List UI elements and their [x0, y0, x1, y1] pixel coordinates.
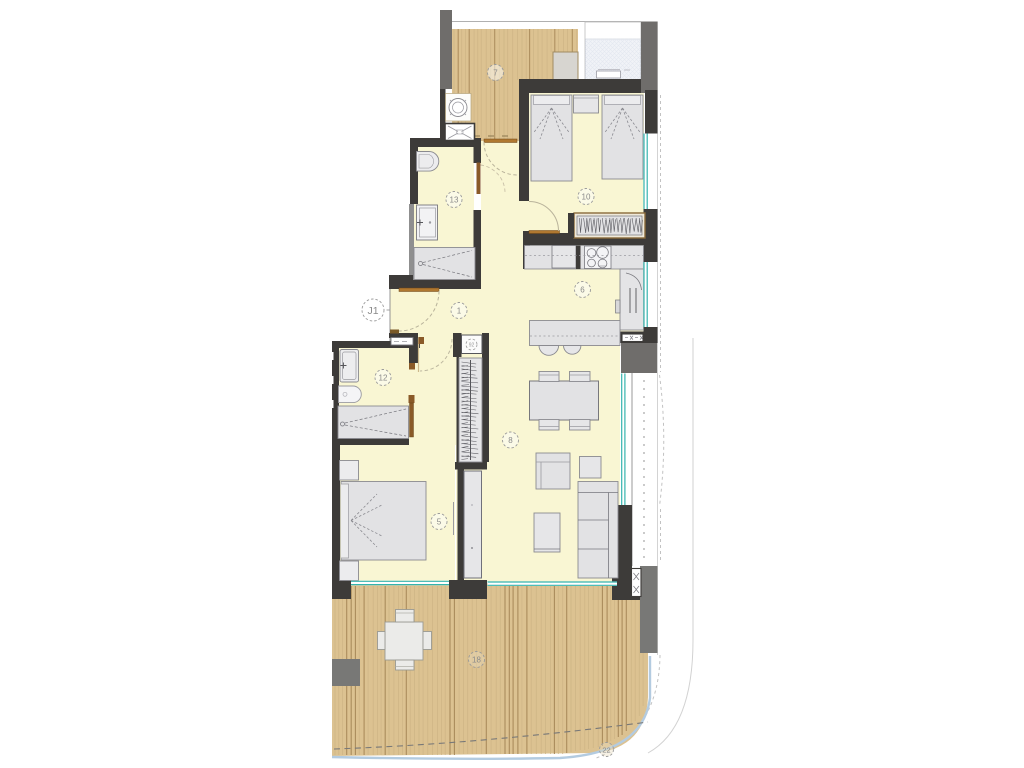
svg-text:J1: J1: [367, 305, 378, 317]
svg-text:18: 18: [472, 655, 481, 664]
svg-text:5: 5: [437, 517, 442, 526]
svg-text:7: 7: [493, 68, 498, 77]
svg-text:92: 92: [469, 343, 475, 349]
svg-text:22: 22: [602, 745, 610, 754]
svg-text:13: 13: [450, 195, 459, 204]
svg-text:6: 6: [580, 285, 585, 294]
svg-text:12: 12: [379, 373, 388, 382]
svg-text:1: 1: [457, 306, 462, 315]
svg-text:8: 8: [508, 436, 513, 445]
svg-text:10: 10: [582, 192, 591, 201]
